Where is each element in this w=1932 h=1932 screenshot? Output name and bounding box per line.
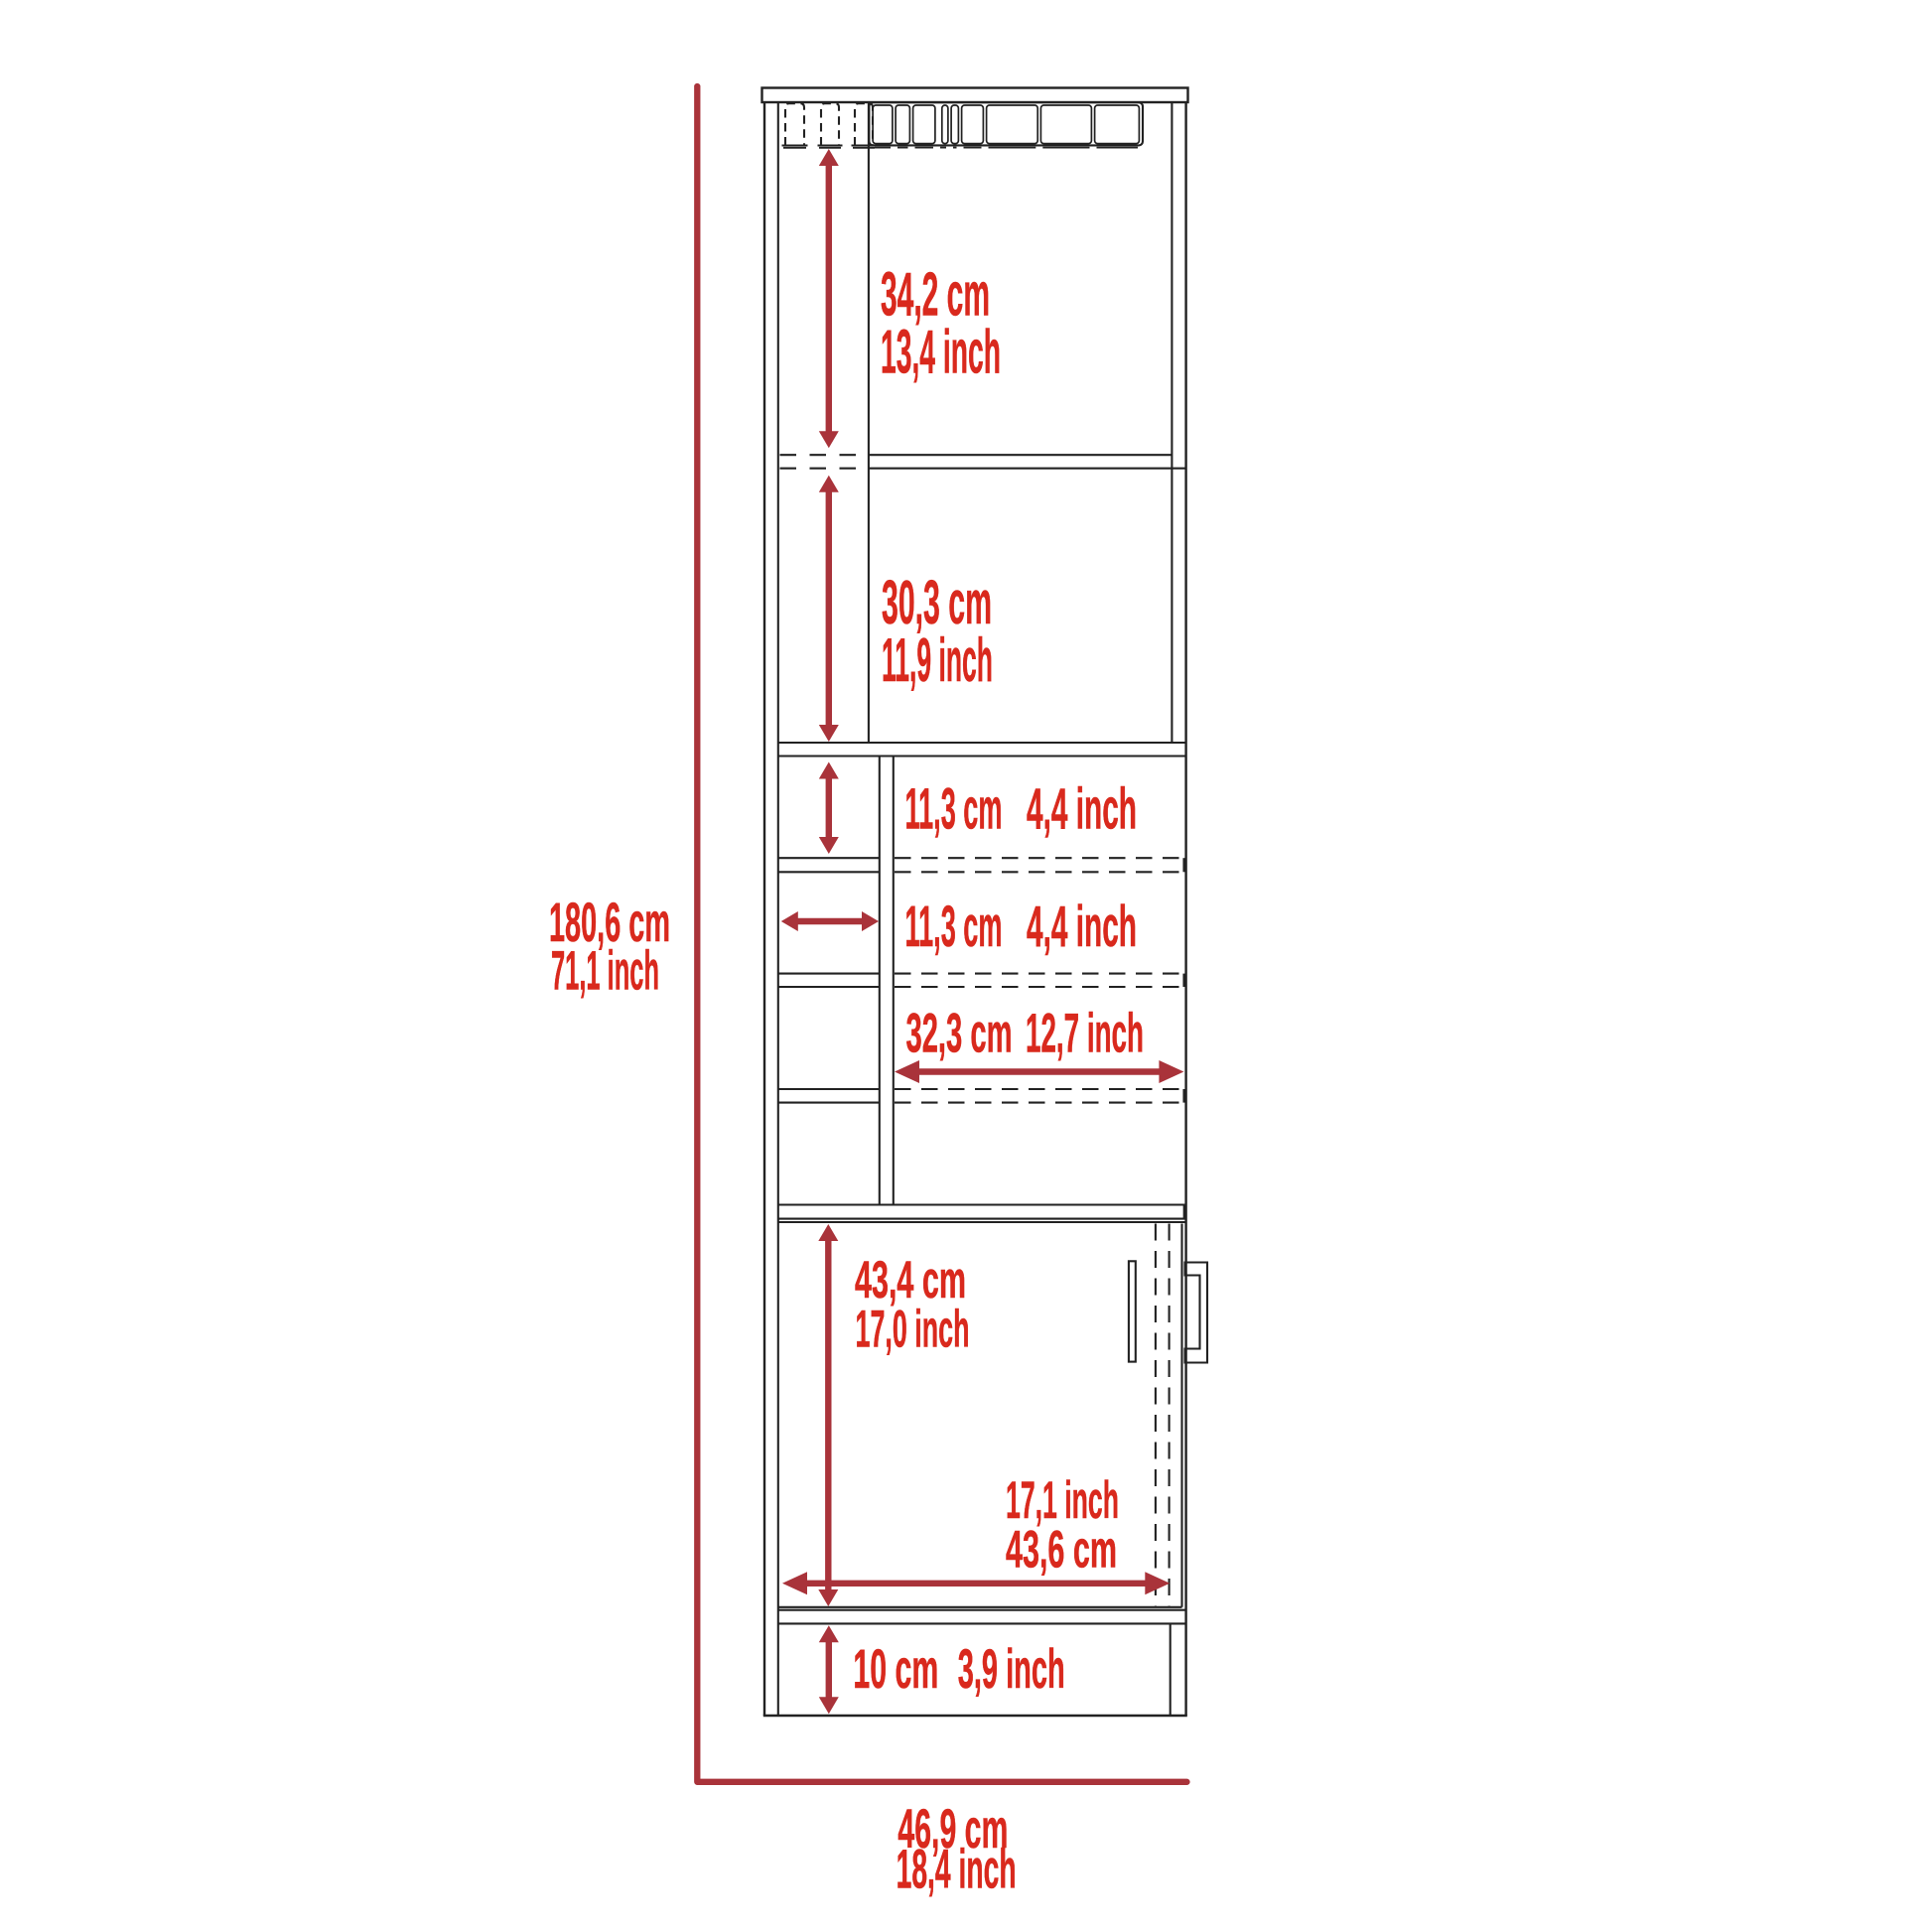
svg-text:4,4 inch: 4,4 inch xyxy=(1027,777,1137,842)
svg-text:3,9 inch: 3,9 inch xyxy=(958,1637,1065,1700)
svg-text:4,4 inch: 4,4 inch xyxy=(1027,895,1137,959)
svg-text:12,7 inch: 12,7 inch xyxy=(1026,1002,1144,1064)
svg-text:32,3 cm: 32,3 cm xyxy=(906,1002,1013,1064)
svg-text:18,4 inch: 18,4 inch xyxy=(897,1838,1017,1900)
svg-text:11,3 cm: 11,3 cm xyxy=(905,777,1003,842)
svg-text:11,9 inch: 11,9 inch xyxy=(882,626,993,695)
svg-text:17,0 inch: 17,0 inch xyxy=(856,1301,970,1359)
svg-text:13,4 inch: 13,4 inch xyxy=(881,319,1001,387)
svg-text:11,3 cm: 11,3 cm xyxy=(905,895,1003,959)
svg-text:43,6 cm: 43,6 cm xyxy=(1006,1521,1117,1580)
svg-text:10 cm: 10 cm xyxy=(853,1637,938,1700)
svg-text:71,1 inch: 71,1 inch xyxy=(551,939,659,1002)
